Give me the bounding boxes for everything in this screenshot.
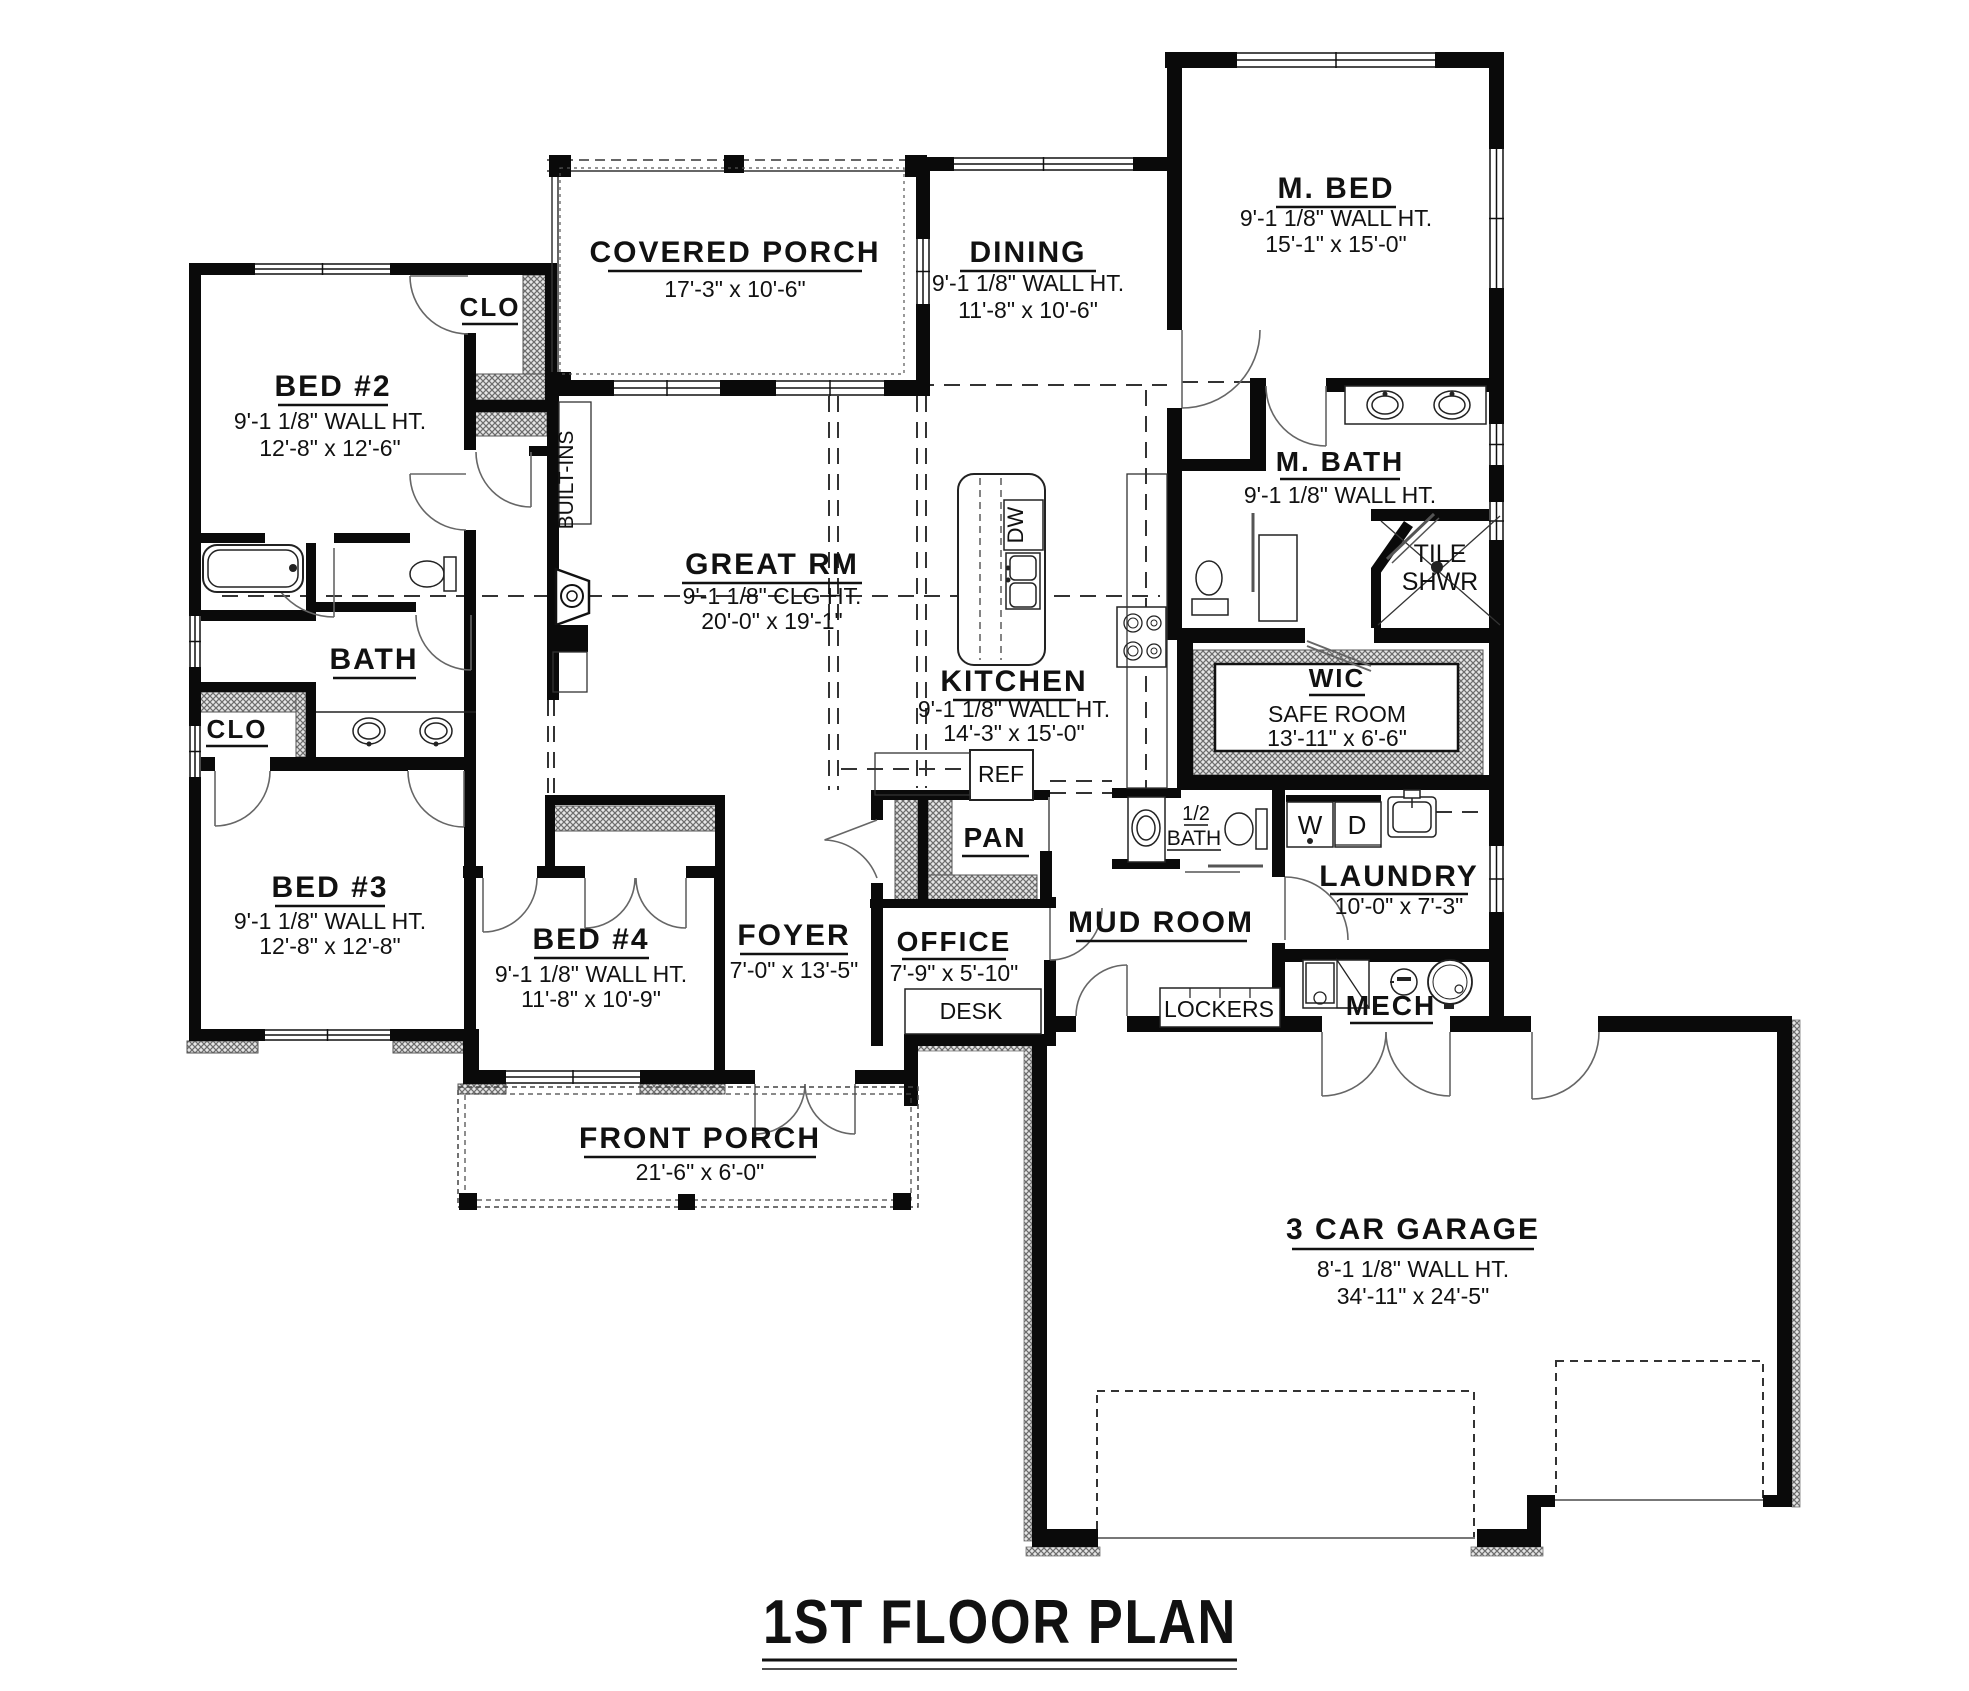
svg-text:20'-0" x 19'-1": 20'-0" x 19'-1" [701, 608, 842, 634]
svg-text:BED #3: BED #3 [271, 871, 388, 904]
svg-text:34'-11" x 24'-5": 34'-11" x 24'-5" [1337, 1283, 1490, 1309]
svg-text:9'-1 1/8" WALL HT.: 9'-1 1/8" WALL HT. [234, 908, 426, 934]
svg-text:BED #4: BED #4 [532, 923, 649, 956]
svg-text:9'-1 1/8" WALL HT.: 9'-1 1/8" WALL HT. [932, 270, 1124, 296]
svg-text:1/2: 1/2 [1182, 803, 1210, 825]
svg-text:OFFICE: OFFICE [897, 926, 1012, 957]
svg-text:M. BED: M. BED [1278, 172, 1395, 205]
svg-text:15'-1" x 15'-0": 15'-1" x 15'-0" [1265, 231, 1406, 257]
svg-text:BUILT-INS: BUILT-INS [555, 431, 578, 530]
svg-text:FRONT PORCH: FRONT PORCH [579, 1122, 821, 1155]
svg-text:14'-3" x 15'-0": 14'-3" x 15'-0" [943, 720, 1084, 746]
svg-text:9'-1 1/8" WALL HT.: 9'-1 1/8" WALL HT. [918, 696, 1110, 722]
svg-text:12'-8" x 12'-8": 12'-8" x 12'-8" [259, 933, 400, 959]
svg-text:KITCHEN: KITCHEN [940, 665, 1087, 698]
svg-text:9'-1 1/8" WALL HT.: 9'-1 1/8" WALL HT. [495, 961, 687, 987]
svg-text:DINING: DINING [970, 236, 1087, 269]
svg-text:8'-1 1/8" WALL HT.: 8'-1 1/8" WALL HT. [1317, 1256, 1509, 1282]
svg-text:PAN: PAN [963, 822, 1026, 853]
svg-text:MUD ROOM: MUD ROOM [1068, 906, 1254, 939]
svg-text:17'-3" x 10'-6": 17'-3" x 10'-6" [664, 276, 805, 302]
svg-text:DESK: DESK [940, 998, 1003, 1024]
svg-text:1ST FLOOR PLAN: 1ST FLOOR PLAN [763, 1588, 1237, 1657]
svg-text:11'-8" x 10'-9": 11'-8" x 10'-9" [521, 986, 661, 1012]
svg-text:LOCKERS: LOCKERS [1164, 996, 1274, 1022]
svg-text:BATH: BATH [329, 643, 418, 676]
svg-text:10'-0" x 7'-3": 10'-0" x 7'-3" [1335, 893, 1464, 919]
svg-text:9'-1 1/8" CLG HT.: 9'-1 1/8" CLG HT. [683, 583, 862, 609]
svg-text:21'-6" x 6'-0": 21'-6" x 6'-0" [636, 1159, 765, 1185]
svg-text:12'-8" x 12'-6": 12'-8" x 12'-6" [259, 435, 400, 461]
svg-text:SHWR: SHWR [1402, 568, 1478, 596]
svg-text:WIC: WIC [1309, 663, 1366, 693]
svg-text:13'-11" x 6'-6": 13'-11" x 6'-6" [1267, 725, 1407, 751]
svg-text:GREAT RM: GREAT RM [685, 548, 859, 581]
svg-text:M. BATH: M. BATH [1276, 446, 1405, 477]
svg-text:11'-8" x 10'-6": 11'-8" x 10'-6" [958, 297, 1098, 323]
svg-text:D: D [1348, 810, 1367, 840]
svg-text:9'-1 1/8" WALL HT.: 9'-1 1/8" WALL HT. [234, 408, 426, 434]
svg-text:BATH: BATH [1167, 827, 1221, 850]
svg-text:LAUNDRY: LAUNDRY [1319, 860, 1479, 893]
svg-text:DW: DW [1003, 506, 1028, 543]
svg-text:CLO: CLO [460, 292, 521, 322]
svg-text:9'-1 1/8" WALL HT.: 9'-1 1/8" WALL HT. [1240, 205, 1432, 231]
svg-text:W: W [1298, 810, 1323, 840]
svg-text:9'-1 1/8" WALL HT.: 9'-1 1/8" WALL HT. [1244, 482, 1436, 508]
svg-text:SAFE ROOM: SAFE ROOM [1268, 701, 1406, 727]
svg-text:REF: REF [978, 761, 1024, 787]
svg-text:BED #2: BED #2 [274, 370, 391, 403]
svg-text:TILE: TILE [1414, 540, 1467, 568]
svg-text:7'-0" x 13'-5": 7'-0" x 13'-5" [730, 957, 859, 983]
svg-text:7'-9" x 5'-10": 7'-9" x 5'-10" [890, 960, 1019, 986]
svg-text:CLO: CLO [207, 714, 268, 744]
svg-text:MECH: MECH [1346, 990, 1436, 1021]
svg-text:COVERED PORCH: COVERED PORCH [589, 236, 880, 269]
svg-text:FOYER: FOYER [737, 919, 850, 952]
svg-text:3 CAR GARAGE: 3 CAR GARAGE [1286, 1213, 1540, 1246]
